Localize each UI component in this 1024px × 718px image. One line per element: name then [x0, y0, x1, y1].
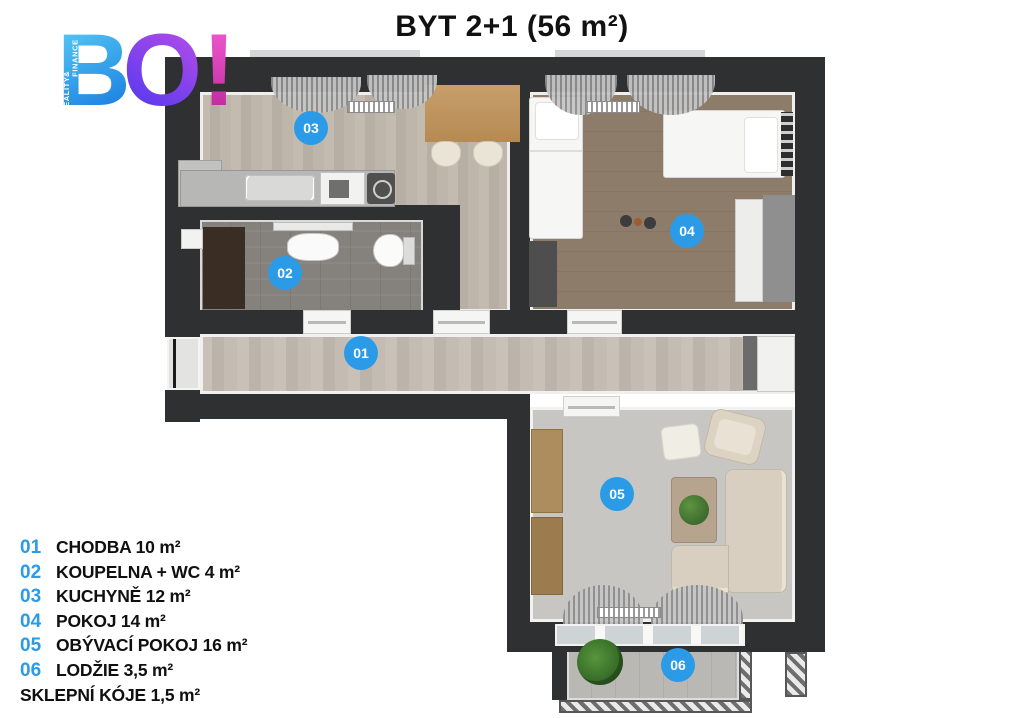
- logo-tagline-line2: & FINANCE: [63, 39, 80, 77]
- legend-row: 02 KOUPELNA + WC 4 m²: [20, 562, 247, 587]
- legend-num: 03: [20, 586, 56, 608]
- bedroom-radiator: [585, 101, 640, 113]
- bathroom-sink: [287, 233, 339, 261]
- sink-basin: [329, 180, 349, 198]
- door-bathroom: [303, 310, 351, 334]
- ottoman: [660, 423, 702, 461]
- door-bedroom: [567, 310, 622, 334]
- bed-headboard: [781, 112, 793, 176]
- bathroom-shelf: [273, 222, 353, 231]
- legend-row: 03 KUCHYNĚ 12 m²: [20, 586, 247, 611]
- door-livingroom: [563, 396, 620, 417]
- wall-bathroom-top: [190, 205, 460, 220]
- blanket-fold: [530, 150, 582, 152]
- legend-row: 04 POKOJ 14 m²: [20, 611, 247, 636]
- legend-label: OBÝVACÍ POKOJ 16 m²: [56, 635, 247, 656]
- bed-single-top: [663, 110, 785, 178]
- wardrobe-gray: [763, 195, 795, 302]
- window-sill-kitchen: [250, 50, 420, 57]
- legend-num: 04: [20, 611, 56, 633]
- wall-loggia-left-stub: [552, 650, 567, 700]
- logo-tagline-line1: REALITY: [63, 77, 80, 113]
- wall-bathroom-right: [423, 205, 460, 312]
- bathroom-cabinet: [203, 227, 245, 309]
- room-legend: 01 CHODBA 10 m² 02 KOUPELNA + WC 4 m² 03…: [20, 537, 247, 709]
- window-sill-room04: [555, 50, 705, 57]
- legend-num: 02: [20, 562, 56, 584]
- room-badge-04: 04: [670, 214, 704, 248]
- legend-row: 01 CHODBA 10 m²: [20, 537, 247, 562]
- armchair-cushion: [713, 418, 757, 456]
- legend-label: CHODBA 10 m²: [56, 537, 180, 558]
- legend-label: SKLEPNÍ KÓJE 1,5 m²: [20, 685, 200, 706]
- toy-tricycle: [620, 215, 632, 227]
- room-badge-01: 01: [344, 336, 378, 370]
- legend-row: 06 LODŽIE 3,5 m²: [20, 660, 247, 685]
- hall-closet: [757, 336, 795, 392]
- logo-tagline: REALITY & FINANCE: [63, 39, 80, 113]
- loggia-railing-right: [739, 647, 752, 700]
- table-plant: [679, 495, 709, 525]
- floor-plan: 01 02 03 04 05 06: [165, 57, 825, 717]
- wall-livingroom-left: [507, 402, 530, 652]
- legend-label: KOUPELNA + WC 4 m²: [56, 562, 240, 583]
- room-badge-02: 02: [268, 256, 302, 290]
- legend-label: POKOJ 14 m²: [56, 611, 166, 632]
- tv-cabinet-bottom: [531, 517, 563, 595]
- entrance-recess: [167, 337, 200, 390]
- dining-table: [425, 85, 520, 142]
- bo-logo: B O ! REALITY & FINANCE: [57, 30, 236, 110]
- legend-label: LODŽIE 3,5 m²: [56, 660, 173, 681]
- toilet: [373, 234, 404, 267]
- wall-hallway-bottom: [165, 394, 530, 419]
- room-badge-06: 06: [661, 648, 695, 682]
- tv-cabinet-top: [531, 429, 563, 513]
- kitchen-stove: [367, 173, 395, 204]
- kitchen-radiator: [347, 101, 395, 113]
- legend-row-basement: SKLEPNÍ KÓJE 1,5 m²: [20, 685, 247, 710]
- room-badge-05: 05: [600, 477, 634, 511]
- kitchen-sink: [320, 172, 365, 205]
- logo-letter-o: O: [123, 30, 202, 110]
- dining-chair-2: [473, 141, 503, 167]
- room-badge-03: 03: [294, 111, 328, 145]
- wardrobe-white: [735, 199, 763, 302]
- toilet-tank: [403, 237, 415, 265]
- livingroom-radiator: [597, 607, 661, 618]
- wall-hallway-top: [200, 310, 795, 334]
- legend-row: 05 OBÝVACÍ POKOJ 16 m²: [20, 635, 247, 660]
- legend-label: KUCHYNĚ 12 m²: [56, 586, 191, 607]
- bed-single-left: [529, 97, 583, 239]
- legend-num: 01: [20, 537, 56, 559]
- sofa-vertical: [725, 469, 787, 593]
- entrance-door: [173, 339, 176, 388]
- room-hallway-floor: [200, 334, 795, 394]
- pillow: [744, 117, 778, 173]
- neighbor-balcony-railing: [785, 652, 807, 697]
- dining-chair-1: [431, 141, 461, 167]
- loggia-railing-bottom: [559, 700, 752, 713]
- loggia-glass-door: [555, 624, 745, 646]
- loggia-plant: [577, 639, 623, 685]
- bedroom-dresser: [529, 241, 557, 307]
- legend-num: 05: [20, 635, 56, 657]
- stove-pot: [373, 180, 392, 199]
- logo-exclamation: !: [202, 30, 236, 110]
- legend-num: 06: [20, 660, 56, 682]
- hall-closet-door: [743, 336, 757, 390]
- floorplan-page: BYT 2+1 (56 m²) B O ! REALITY & FINANCE: [0, 0, 1024, 718]
- bathroom-wall-box: [181, 229, 203, 249]
- wall-right: [795, 57, 825, 652]
- kitchen-dishrack: [245, 175, 315, 201]
- door-kitchen: [433, 310, 490, 334]
